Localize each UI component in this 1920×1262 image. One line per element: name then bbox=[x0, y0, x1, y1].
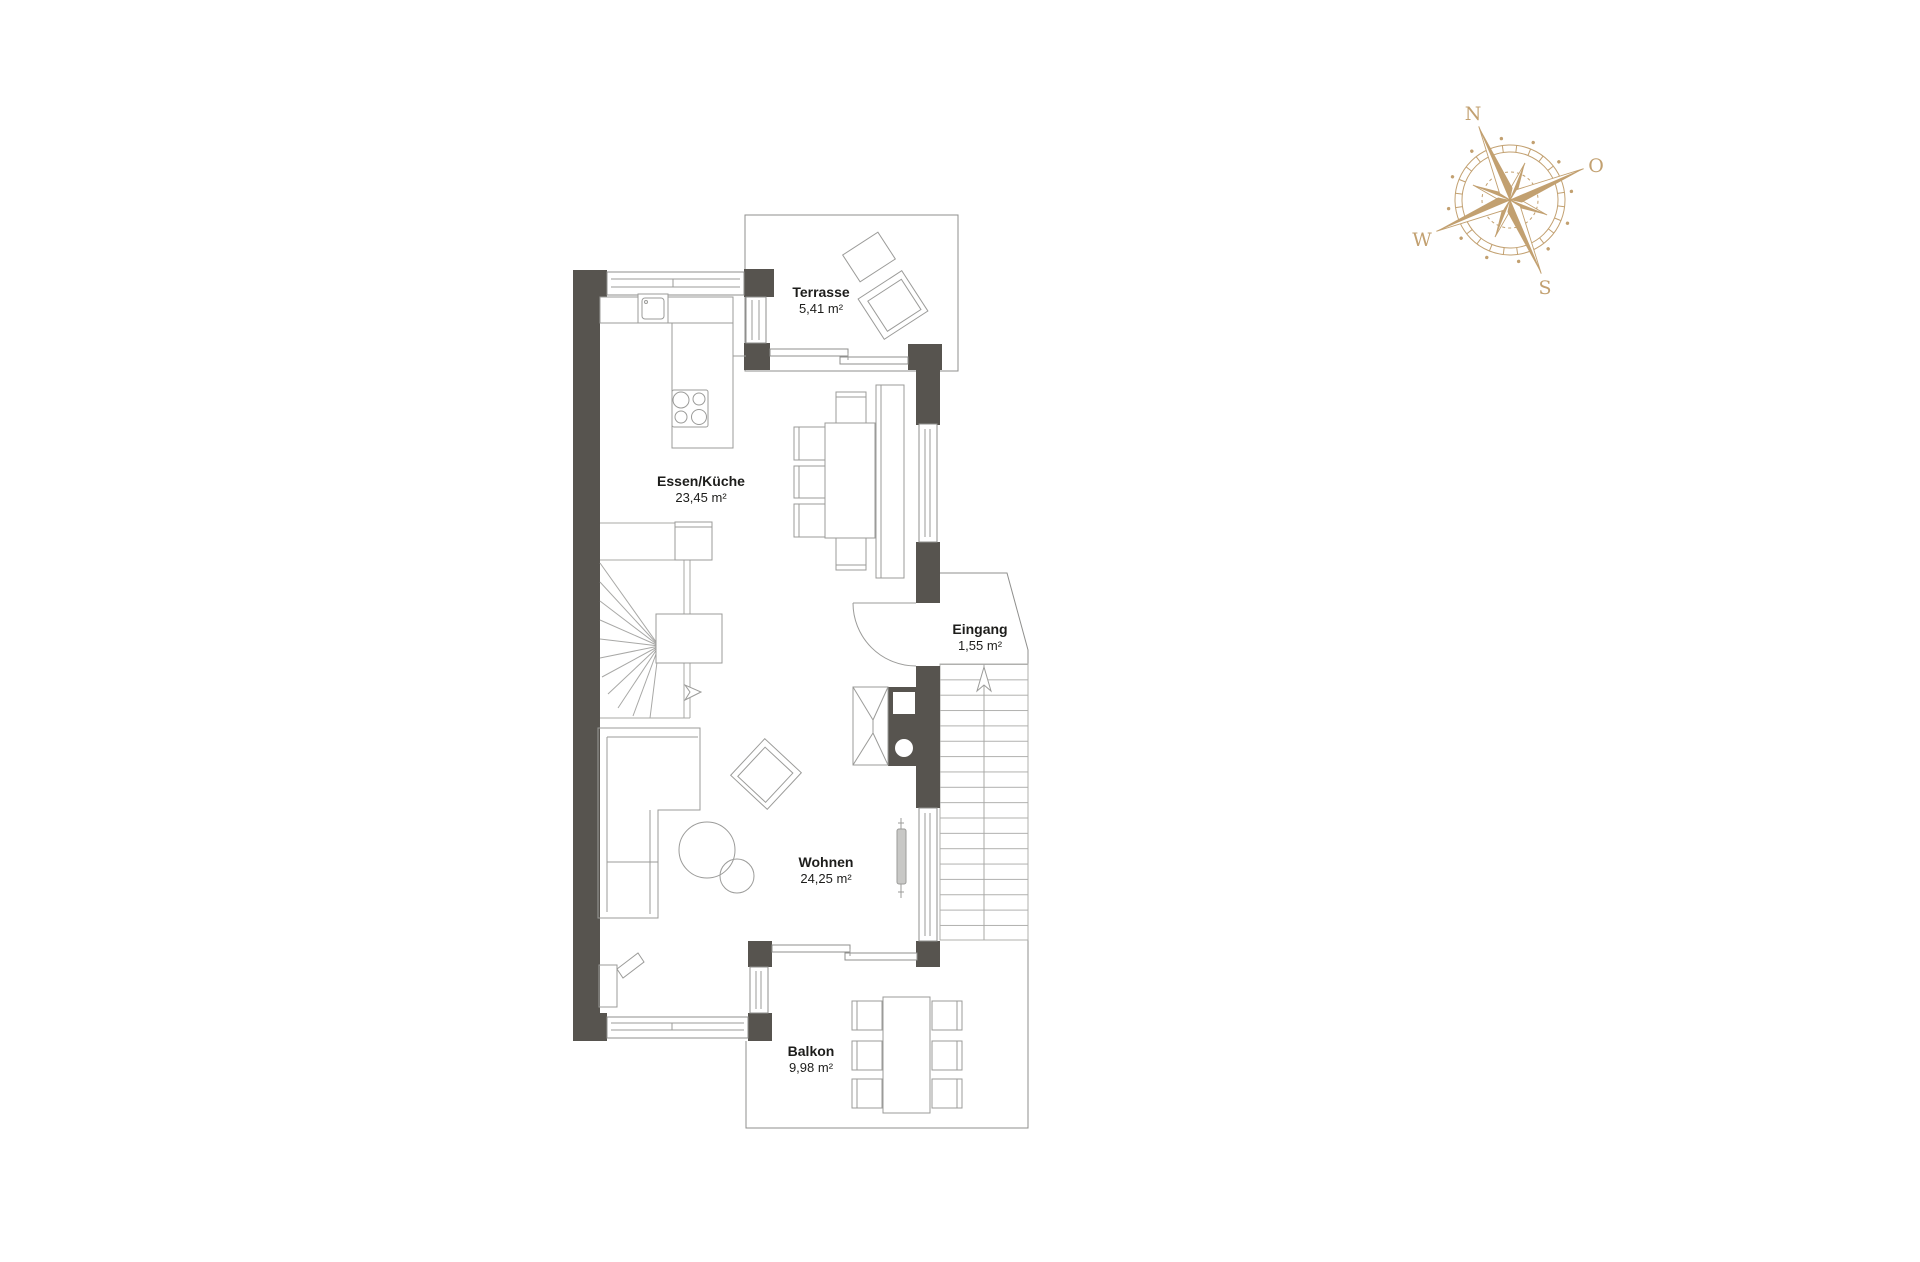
room-label-terrasse: Terrasse bbox=[792, 284, 850, 300]
south-window bbox=[607, 1017, 748, 1038]
terrace-chair bbox=[858, 271, 928, 340]
balcony-table bbox=[883, 997, 930, 1113]
balcony-dining-set bbox=[852, 997, 962, 1113]
balcony-sliding-door bbox=[772, 945, 917, 960]
chimney-flue-circle bbox=[895, 739, 913, 757]
room-area-balkon: 9,98 m² bbox=[789, 1060, 834, 1075]
room-label-essen-kueche: Essen/Küche bbox=[657, 473, 745, 489]
kitchen-north-window bbox=[607, 272, 744, 295]
balcony-chair bbox=[932, 1041, 962, 1070]
room-area-terrasse: 5,41 m² bbox=[799, 301, 844, 316]
room-area-eingang: 1,55 m² bbox=[958, 638, 1003, 653]
tv-board bbox=[599, 953, 644, 1007]
dining-table bbox=[825, 423, 875, 538]
compass-north-label: N bbox=[1465, 103, 1482, 125]
dining-east-window bbox=[919, 424, 937, 542]
living-east-window bbox=[919, 808, 937, 941]
balcony-chair bbox=[932, 1001, 962, 1030]
balcony-chair bbox=[852, 1041, 882, 1070]
compass-west-label: W bbox=[1412, 229, 1432, 251]
room-label-wohnen: Wohnen bbox=[799, 854, 854, 870]
exterior-stairs bbox=[940, 664, 1028, 940]
dining-set bbox=[794, 385, 904, 578]
lower-room-balcony-window bbox=[750, 967, 768, 1013]
radiator bbox=[897, 818, 906, 898]
entrance-door bbox=[853, 603, 916, 666]
balcony-chair bbox=[852, 1001, 882, 1030]
dining-chair bbox=[836, 392, 866, 423]
kitchen-counter bbox=[600, 294, 746, 448]
dining-bench bbox=[876, 385, 904, 578]
room-label-eingang: Eingang bbox=[952, 621, 1007, 637]
dining-chair bbox=[836, 538, 866, 570]
kitchen-terrace-window bbox=[746, 297, 766, 343]
terrace-sliding-door bbox=[770, 349, 908, 364]
armchair bbox=[731, 739, 802, 810]
room-area-wohnen: 24,25 m² bbox=[800, 871, 852, 886]
compass-rose-icon: N O W S bbox=[1405, 95, 1615, 305]
sofa bbox=[598, 728, 700, 918]
compass-east-label: O bbox=[1588, 155, 1604, 177]
balcony-chair bbox=[852, 1079, 882, 1108]
kitchen-sink bbox=[638, 294, 668, 323]
dining-chair bbox=[794, 427, 825, 460]
fireplace bbox=[853, 687, 888, 765]
interior-staircase bbox=[600, 522, 722, 718]
dining-chair bbox=[794, 504, 825, 537]
room-label-balkon: Balkon bbox=[788, 1043, 835, 1059]
cooktop bbox=[672, 390, 708, 427]
coffee-tables bbox=[679, 822, 754, 893]
balcony-chair bbox=[932, 1079, 962, 1108]
room-area-essen-kueche: 23,45 m² bbox=[675, 490, 727, 505]
floorplan-canvas: Terrasse 5,41 m² Essen/Küche 23,45 m² Ei… bbox=[0, 0, 1920, 1262]
compass-south-label: S bbox=[1538, 277, 1551, 299]
chimney-flue-square bbox=[893, 692, 915, 714]
dining-chair bbox=[794, 466, 825, 498]
terrace-lounger bbox=[843, 232, 896, 282]
